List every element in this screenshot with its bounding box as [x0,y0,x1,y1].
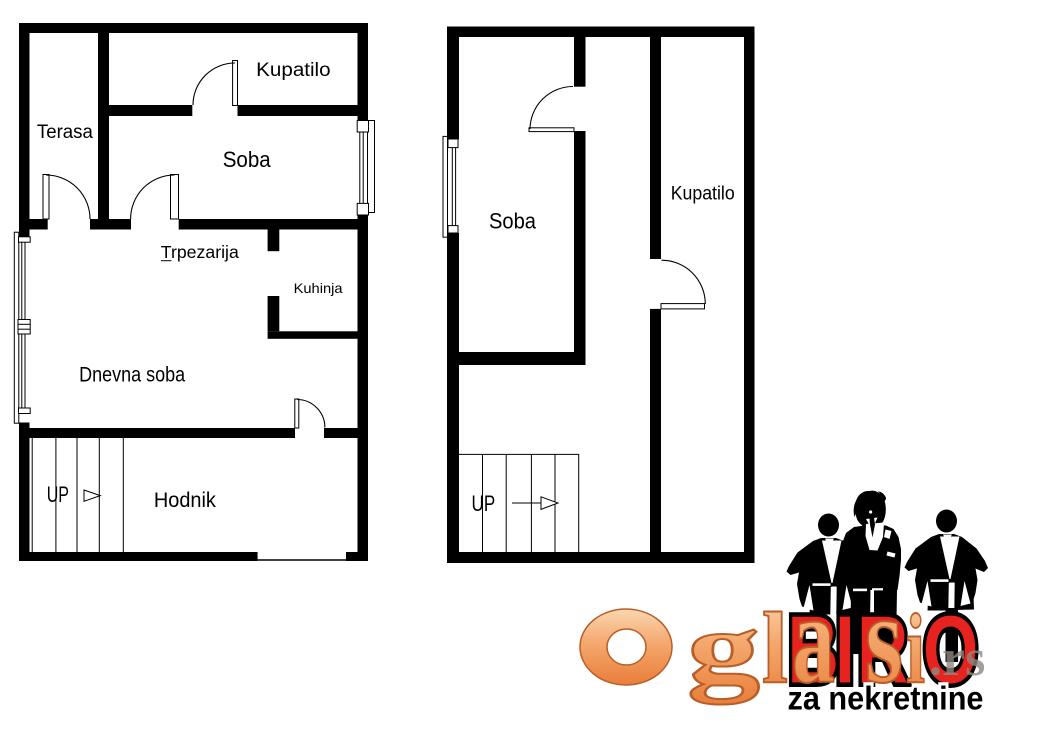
svg-text:UP: UP [472,491,496,516]
svg-text:g: g [687,592,760,705]
svg-text:Kupatilo: Kupatilo [671,184,735,205]
svg-text:.rs: .rs [929,630,985,687]
svg-text:Soba: Soba [223,147,272,172]
svg-text:Soba: Soba [489,209,537,234]
svg-text:Kuhinja: Kuhinja [294,280,343,296]
svg-text:Terasa: Terasa [37,122,93,143]
svg-text:Dnevna soba: Dnevna soba [79,363,185,386]
svg-text:Kupatilo: Kupatilo [256,60,330,81]
svg-text:za nekretnine: za nekretnine [788,680,984,717]
svg-text:l: l [762,592,788,705]
svg-text:Trpezarija: Trpezarija [161,242,239,262]
svg-text:Hodnik: Hodnik [154,488,216,512]
svg-text:UP: UP [47,482,69,507]
